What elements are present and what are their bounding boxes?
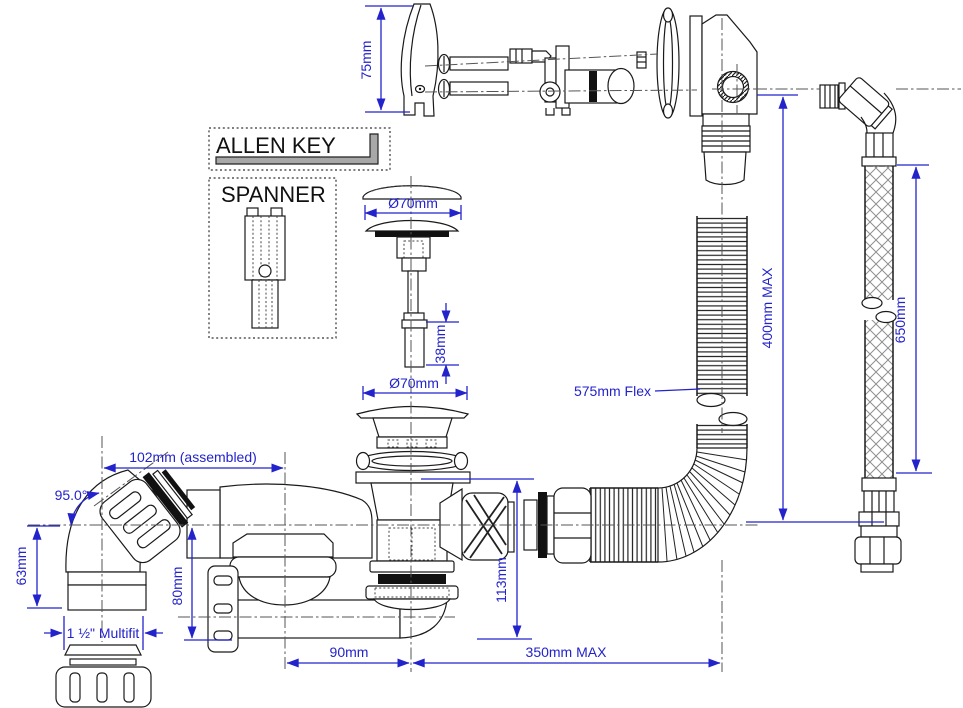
svg-text:Ø70mm: Ø70mm	[389, 375, 439, 391]
svg-text:102mm (assembled): 102mm (assembled)	[129, 449, 257, 465]
overflow-gasket	[657, 8, 679, 118]
dimension-350mm-max: 350mm MAX	[413, 644, 720, 663]
spanner-box: SPANNER	[209, 178, 336, 338]
svg-text:400mm MAX: 400mm MAX	[759, 267, 775, 349]
dimension-90mm: 90mm	[287, 644, 409, 663]
allen-key-box: ALLEN KEY	[209, 128, 390, 170]
svg-text:113mm: 113mm	[493, 557, 509, 603]
svg-text:650mm: 650mm	[892, 297, 908, 344]
grub-screw	[402, 320, 427, 367]
dimension-38mm: 38mm	[426, 303, 459, 384]
dimension-63mm: 63mm	[13, 526, 62, 608]
svg-text:95.0°: 95.0°	[55, 487, 88, 503]
svg-text:350mm MAX: 350mm MAX	[526, 644, 608, 660]
diagram-page: ALLEN KEY SPANNER	[0, 0, 963, 708]
dimension-650mm: 650mm	[892, 165, 932, 473]
overflow-valve-body	[565, 69, 634, 104]
waste-body	[356, 472, 514, 610]
label-flex-pipe: 575mm Flex	[574, 383, 700, 399]
rubber-washer	[357, 452, 468, 471]
svg-text:38mm: 38mm	[432, 325, 448, 364]
overflow-body	[690, 15, 757, 185]
dimension-flange-diameter: Ø70mm	[363, 375, 467, 400]
svg-text:80mm: 80mm	[169, 567, 185, 606]
allen-key-label: ALLEN KEY	[216, 133, 336, 158]
svg-text:1 ½" Multifit: 1 ½" Multifit	[67, 625, 140, 641]
plug-mechanism	[366, 221, 458, 323]
flexible-tap-connector	[820, 76, 901, 572]
waste-strainer	[357, 407, 468, 449]
fixing-screw-lower	[439, 80, 509, 99]
svg-text:75mm: 75mm	[358, 41, 374, 80]
spanner-label: SPANNER	[221, 182, 326, 207]
svg-text:63mm: 63mm	[13, 547, 29, 586]
svg-text:90mm: 90mm	[330, 644, 369, 660]
overflow-faceplate	[401, 4, 438, 116]
svg-text:Ø70mm: Ø70mm	[388, 195, 438, 211]
svg-text:575mm Flex: 575mm Flex	[574, 383, 651, 399]
spanner-icon	[245, 208, 285, 328]
dimension-102mm: 102mm (assembled)	[104, 449, 283, 468]
technical-diagram: ALLEN KEY SPANNER	[0, 0, 963, 708]
